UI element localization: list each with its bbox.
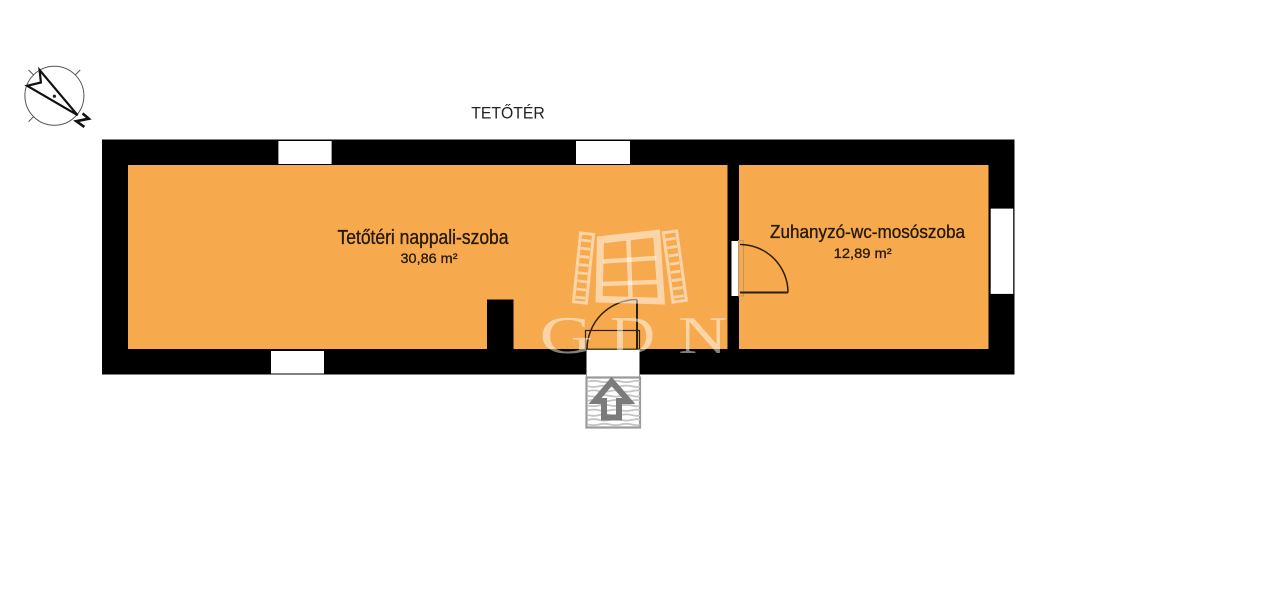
svg-text:12,89 m²: 12,89 m²: [834, 245, 892, 261]
svg-text:Tetőtéri nappali-szoba: Tetőtéri nappali-szoba: [338, 227, 510, 249]
svg-text:N: N: [678, 307, 727, 365]
svg-text:Zuhanyzó-wc-mosószoba: Zuhanyzó-wc-mosószoba: [770, 221, 966, 242]
svg-text:30,86 m²: 30,86 m²: [401, 250, 458, 266]
svg-text:TETŐTÉR: TETŐTÉR: [471, 104, 545, 123]
svg-text:D: D: [610, 307, 655, 365]
svg-text:G: G: [540, 307, 593, 365]
